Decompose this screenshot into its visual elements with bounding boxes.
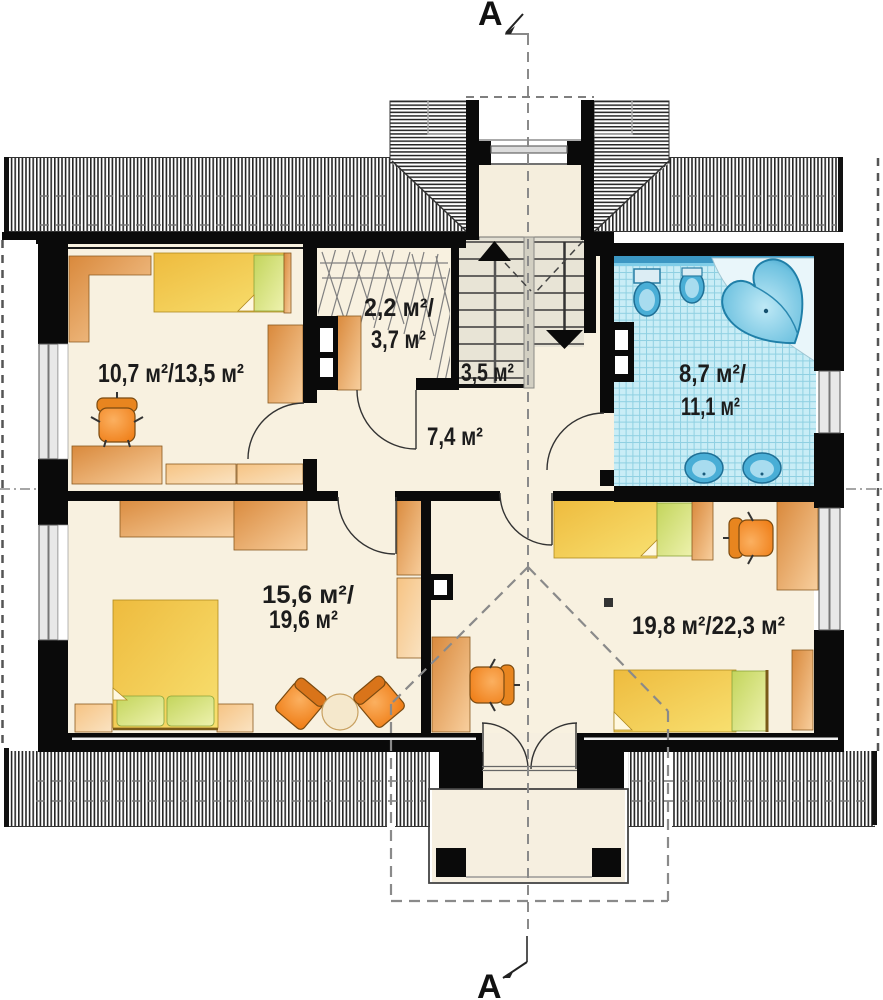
svg-text:15,6 м²/: 15,6 м²/ (262, 581, 354, 609)
svg-text:8,7 м²/: 8,7 м²/ (679, 360, 746, 388)
svg-text:10,7 м²/13,5 м²: 10,7 м²/13,5 м² (98, 358, 244, 388)
svg-text:11,1 м²: 11,1 м² (681, 393, 740, 421)
svg-text:A: A (477, 968, 502, 1000)
svg-text:A: A (478, 0, 503, 33)
svg-text:3,5 м²: 3,5 м² (461, 359, 514, 387)
svg-text:19,8 м²/22,3 м²: 19,8 м²/22,3 м² (632, 612, 785, 640)
svg-text:7,4 м²: 7,4 м² (427, 423, 483, 451)
svg-text:19,6 м²: 19,6 м² (269, 606, 338, 634)
svg-text:2,2 м²/: 2,2 м²/ (364, 294, 434, 322)
svg-text:3,7 м²: 3,7 м² (371, 326, 426, 354)
